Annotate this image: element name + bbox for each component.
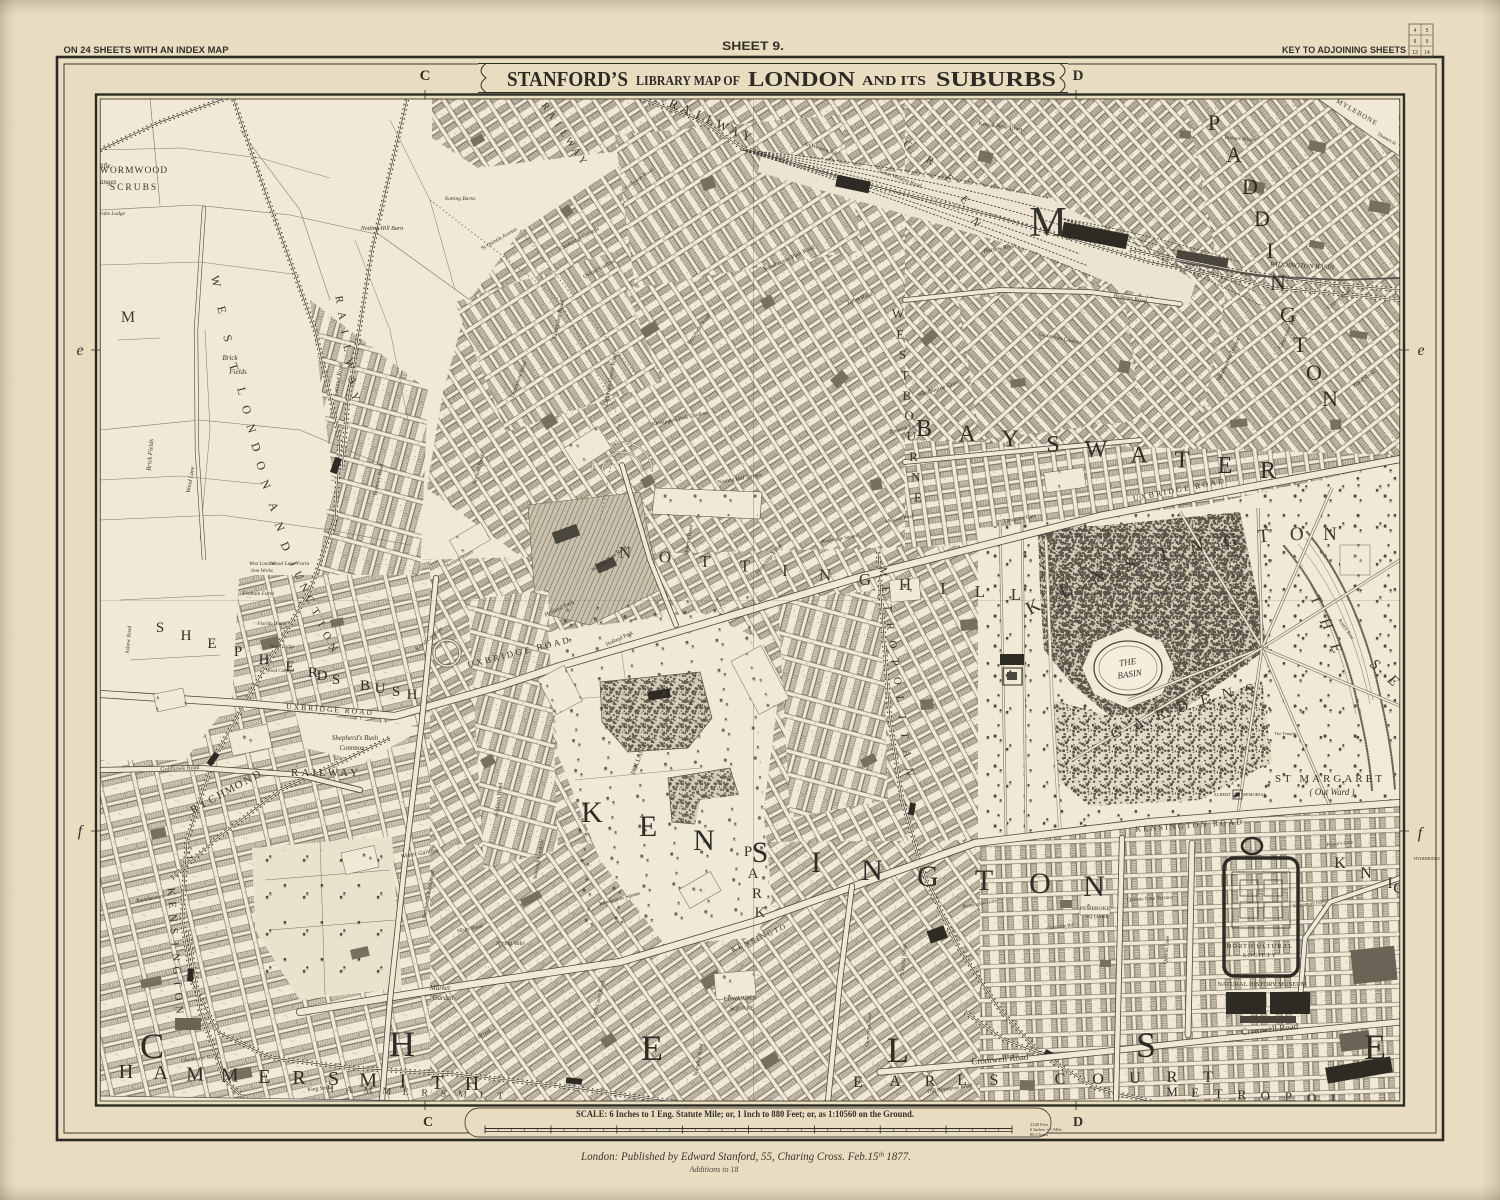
svg-text:Fenham Farm: Fenham Farm [241, 591, 274, 597]
svg-text:A: A [1130, 442, 1148, 468]
svg-text:T: T [1257, 526, 1271, 548]
svg-text:N: N [1323, 524, 1337, 545]
svg-text:I: I [940, 579, 946, 598]
svg-text:e: e [1417, 342, 1424, 359]
svg-text:I: I [1266, 238, 1273, 263]
svg-text:T: T [171, 980, 184, 988]
svg-text:The Temple: The Temple [1274, 731, 1295, 736]
svg-text:LIBRARY MAP OF: LIBRARY MAP OF [636, 73, 740, 88]
svg-text:N: N [1270, 270, 1286, 295]
svg-text:D: D [1242, 174, 1258, 199]
svg-text:O: O [1029, 867, 1051, 900]
svg-text:B: B [903, 388, 912, 403]
svg-text:M: M [121, 309, 135, 326]
svg-text:E: E [1364, 1027, 1386, 1067]
svg-text:H: H [407, 687, 418, 703]
svg-text:14: 14 [1424, 50, 1430, 56]
svg-text:D: D [1254, 206, 1270, 231]
svg-text:M: M [458, 1089, 468, 1101]
svg-text:L: L [887, 1030, 909, 1070]
svg-text:D: D [1073, 1115, 1083, 1130]
svg-text:S: S [752, 836, 769, 869]
svg-text:SQ UARE: SQ UARE [1085, 914, 1109, 920]
svg-text:B: B [916, 416, 932, 442]
svg-text:ALBERT: ALBERT [1213, 792, 1230, 797]
svg-text:HYDEBRIDGE: HYDEBRIDGE [1414, 856, 1441, 861]
svg-text:B: B [360, 678, 370, 694]
svg-text:Notting Hill Barn: Notting Hill Barn [360, 226, 403, 232]
svg-text:E: E [639, 810, 657, 843]
svg-text:Spring Vale: Spring Vale [496, 941, 524, 947]
svg-text:SOCIETY: SOCIETY [1243, 952, 1277, 959]
svg-text:T: T [1293, 332, 1307, 357]
svg-text:Wood Lane Farm: Wood Lane Farm [271, 561, 309, 567]
svg-text:M: M [1166, 1084, 1178, 1099]
svg-text:E: E [879, 586, 891, 594]
svg-text:R: R [421, 1088, 429, 1099]
svg-text:West London: West London [249, 562, 275, 567]
svg-text:4: 4 [1414, 28, 1417, 34]
svg-text:T: T [740, 557, 751, 576]
svg-text:G: G [859, 570, 871, 589]
svg-text:London: Published by Edward St: London: Published by Edward Stanford, 55… [580, 1149, 911, 1163]
svg-text:N: N [819, 566, 831, 585]
svg-text:O: O [1092, 1071, 1104, 1088]
svg-text:A: A [1226, 142, 1242, 167]
svg-text:Common: Common [339, 744, 365, 752]
svg-text:R: R [752, 886, 762, 902]
svg-text:S: S [156, 620, 164, 636]
svg-text:13: 13 [1412, 50, 1418, 56]
svg-text:N: N [169, 953, 182, 962]
svg-text:H: H [119, 1061, 133, 1083]
svg-text:K: K [1334, 855, 1346, 872]
svg-text:U: U [375, 681, 386, 697]
svg-text:R: R [1238, 1087, 1247, 1102]
svg-text:D: D [1073, 68, 1084, 84]
svg-text:A: A [153, 1062, 168, 1084]
svg-text:D: D [317, 668, 328, 684]
svg-text:R: R [1260, 458, 1276, 484]
svg-text:G: G [170, 966, 183, 975]
svg-text:HORTICULTURAL: HORTICULTURAL [1227, 943, 1294, 950]
svg-text:ST MARGARET: ST MARGARET [1275, 773, 1385, 785]
svg-text:E: E [1218, 453, 1233, 479]
svg-text:N: N [861, 854, 883, 887]
svg-text:T: T [1175, 448, 1190, 474]
svg-text:C: C [140, 1026, 164, 1066]
svg-text:N: N [903, 767, 916, 776]
svg-text:N: N [911, 470, 921, 485]
svg-text:E: E [853, 1074, 863, 1091]
svg-text:L: L [1011, 585, 1021, 604]
svg-text:5: 5 [1426, 28, 1429, 34]
svg-text:8: 8 [1414, 39, 1417, 45]
svg-text:T: T [1215, 1086, 1223, 1101]
svg-text:G: G [917, 860, 939, 893]
svg-text:N: N [166, 913, 179, 922]
svg-text:E: E [166, 901, 179, 909]
svg-text:Fields: Fields [228, 368, 247, 376]
svg-text:O: O [904, 408, 913, 423]
svg-text:M: M [186, 1063, 204, 1085]
svg-text:A: A [889, 1073, 901, 1090]
svg-text:E: E [896, 326, 904, 341]
svg-text:R: R [909, 449, 918, 464]
svg-text:T: T [497, 1091, 504, 1102]
svg-text:S: S [1046, 432, 1059, 458]
svg-text:S: S [899, 347, 906, 362]
svg-text:S: S [392, 684, 400, 700]
svg-text:SCRUBS: SCRUBS [110, 183, 158, 193]
svg-text:N: N [1322, 386, 1338, 411]
svg-text:E: E [914, 490, 922, 505]
svg-text:O: O [1306, 360, 1322, 385]
svg-text:O: O [172, 992, 185, 1001]
svg-text:T: T [898, 732, 910, 740]
svg-text:T: T [975, 864, 993, 897]
svg-text:L: L [975, 582, 985, 601]
svg-text:Shepherd's Bush: Shepherd's Bush [332, 734, 379, 742]
svg-text:P: P [744, 844, 752, 860]
svg-text:N: N [693, 824, 715, 857]
svg-text:SQUARE: SQUARE [730, 1005, 755, 1012]
svg-text:K: K [755, 905, 766, 921]
svg-text:M: M [1029, 200, 1066, 246]
svg-text:KEY TO ADJOINING SHEETS: KEY TO ADJOINING SHEETS [1282, 45, 1406, 56]
svg-text:LONDON: LONDON [748, 67, 855, 91]
svg-text:A: A [958, 421, 976, 447]
svg-text:C: C [423, 1115, 433, 1130]
svg-text:L: L [893, 695, 905, 703]
svg-text:P: P [1208, 110, 1220, 135]
svg-text:N: N [1083, 870, 1105, 903]
svg-text:E: E [402, 1087, 409, 1098]
svg-text:I: I [811, 846, 821, 879]
svg-text:W: W [1085, 437, 1108, 463]
svg-text:H: H [259, 652, 270, 668]
svg-text:E: E [258, 1066, 270, 1088]
svg-text:SCALE: 6 Inches to 1 Eng. Sta: SCALE: 6 Inches to 1 Eng. Statute Mile; … [576, 1110, 914, 1120]
svg-text:SUBURBS: SUBURBS [936, 67, 1056, 91]
svg-text:P: P [889, 659, 901, 666]
svg-text:H: H [899, 575, 911, 594]
svg-text:Florida House: Florida House [256, 622, 287, 627]
svg-text:K: K [165, 887, 178, 896]
svg-text:P: P [234, 644, 242, 660]
svg-text:Wood Cottage: Wood Cottage [266, 669, 295, 674]
svg-text:e: e [76, 342, 83, 359]
svg-text:M: M [363, 1085, 373, 1097]
svg-text:Iron Works: Iron Works [250, 569, 273, 574]
svg-text:Wood Lodge: Wood Lodge [270, 645, 296, 650]
svg-text:I: I [1387, 875, 1392, 892]
svg-text:PEMBROKE: PEMBROKE [1080, 906, 1111, 912]
svg-text:RAILWAY: RAILWAY [291, 767, 361, 779]
svg-text:T: T [700, 552, 711, 571]
svg-text:S: S [1136, 1025, 1156, 1065]
svg-text:NATURAL HISTORY MUSEUM: NATURAL HISTORY MUSEUM [1217, 981, 1307, 988]
svg-text:M: M [877, 566, 890, 577]
svg-text:C: C [1055, 1071, 1066, 1088]
svg-text:AND ITS: AND ITS [862, 73, 926, 88]
svg-text:Y: Y [1001, 427, 1018, 453]
svg-text:Garden: Garden [432, 994, 454, 1002]
svg-text:S: S [440, 1088, 446, 1099]
svg-text:( Out Ward ): ( Out Ward ) [1309, 787, 1354, 797]
svg-text:STANFORD’S: STANFORD’S [507, 67, 628, 91]
svg-text:M: M [221, 1065, 239, 1087]
svg-text:SHEET 9.: SHEET 9. [722, 41, 784, 53]
svg-text:Brick: Brick [222, 354, 238, 362]
svg-text:Market: Market [429, 984, 451, 992]
svg-text:MEMORIAL: MEMORIAL [1242, 792, 1267, 797]
svg-text:O: O [659, 548, 671, 567]
svg-text:S: S [332, 672, 340, 688]
svg-text:N: N [173, 1005, 186, 1014]
svg-text:E: E [1191, 1085, 1199, 1100]
svg-text:K: K [581, 796, 603, 829]
svg-text:H: H [181, 628, 192, 644]
svg-text:W: W [892, 306, 905, 321]
svg-text:Notting Barns: Notting Barns [443, 196, 475, 202]
svg-text:O: O [891, 676, 904, 685]
svg-text:N: N [1360, 865, 1372, 882]
svg-text:T: T [881, 604, 893, 612]
svg-text:S: S [990, 1072, 999, 1089]
svg-text:U: U [1129, 1070, 1141, 1087]
svg-text:E: E [641, 1028, 663, 1068]
svg-text:E: E [207, 636, 216, 652]
svg-text:O: O [1290, 524, 1304, 545]
svg-text:C: C [420, 68, 431, 84]
svg-text:M: M [382, 1086, 392, 1098]
svg-text:R: R [292, 1067, 306, 1089]
svg-text:T: T [901, 367, 909, 382]
svg-text:9: 9 [1426, 39, 1429, 45]
svg-text:O: O [886, 640, 899, 649]
svg-text:Additions to 18: Additions to 18 [689, 1165, 739, 1174]
svg-text:ON 24 SHEETS WITH AN INDEX MAP: ON 24 SHEETS WITH AN INDEX MAP [64, 45, 230, 56]
svg-text:T: T [1203, 1069, 1213, 1086]
svg-text:H: H [389, 1024, 415, 1064]
svg-text:S: S [167, 927, 179, 934]
svg-text:A: A [748, 866, 759, 882]
svg-text:I: I [782, 561, 788, 580]
svg-text:80 Chains: 80 Chains [1030, 1132, 1048, 1137]
svg-text:A: A [900, 749, 913, 758]
